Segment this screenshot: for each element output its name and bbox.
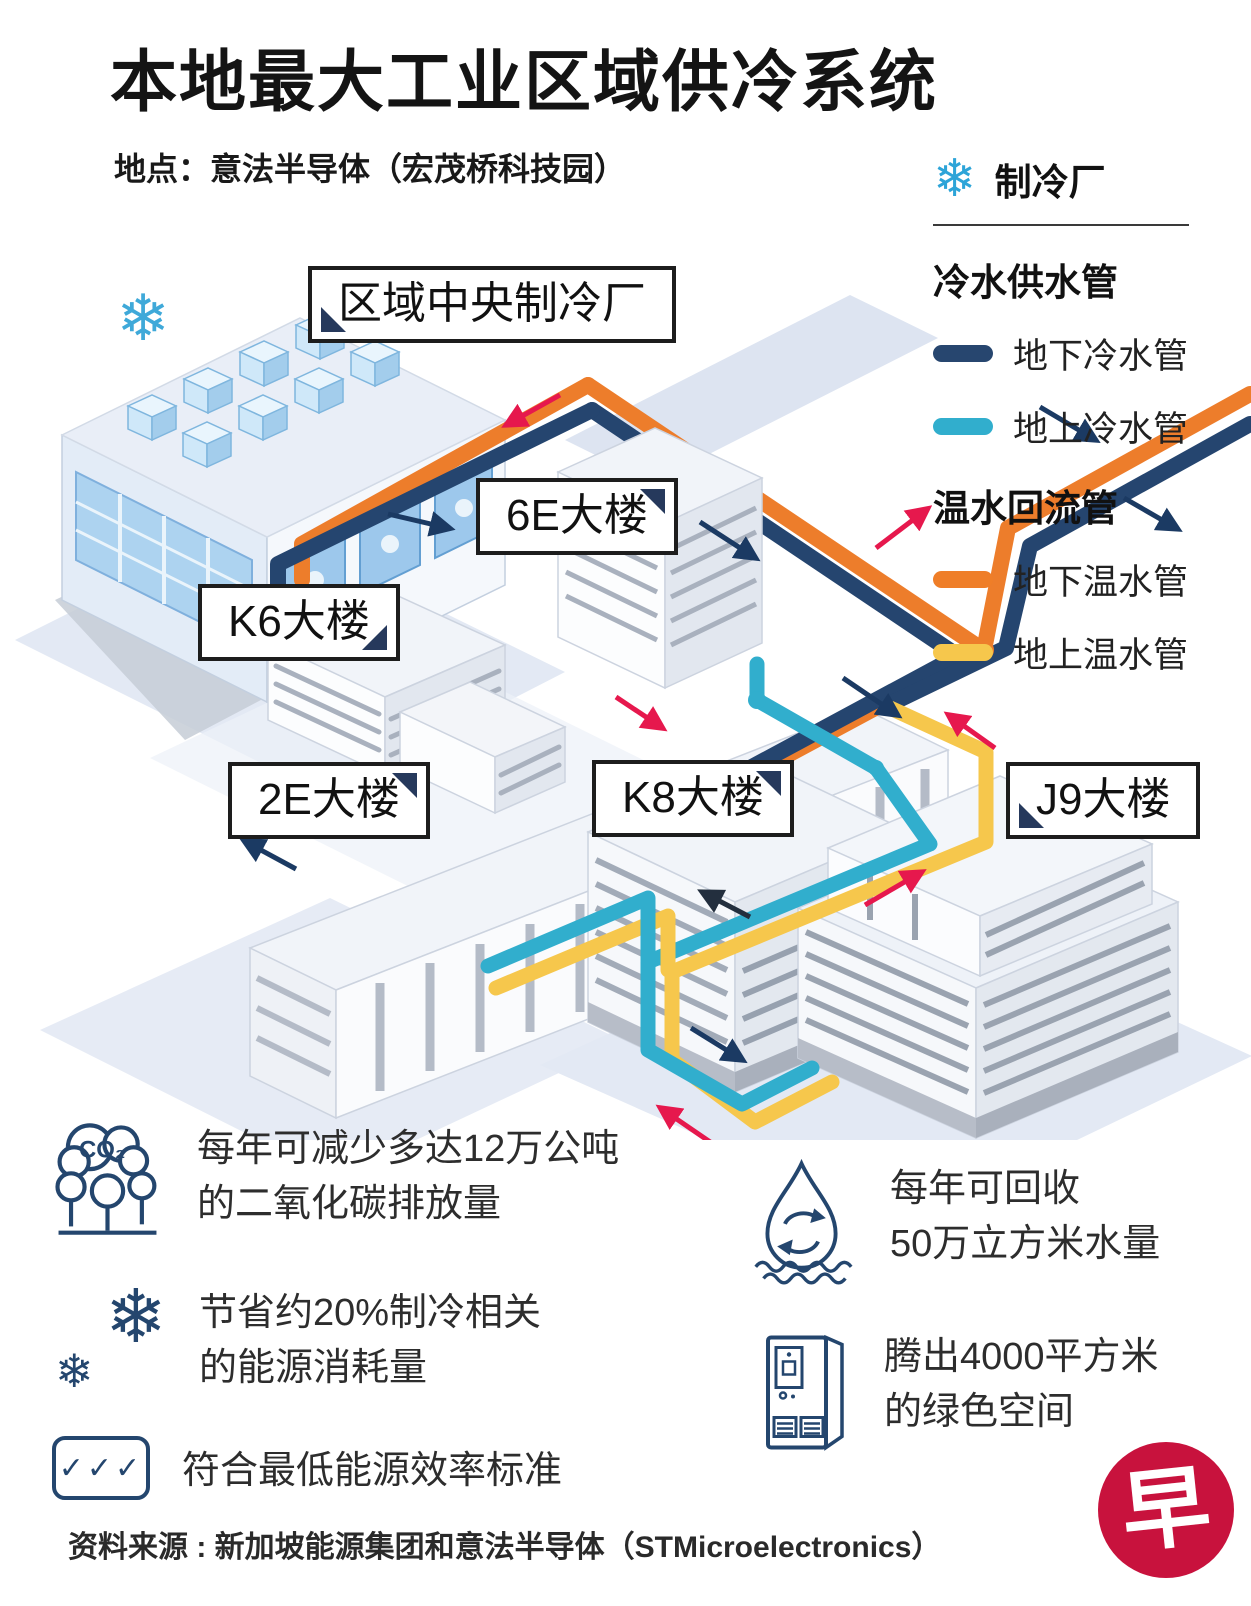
legend-plant-row: ❄ 制冷厂 bbox=[933, 150, 1233, 208]
svg-text:CO₂: CO₂ bbox=[79, 1137, 126, 1164]
label-pointer bbox=[392, 773, 417, 798]
equipment-cabinet-icon bbox=[752, 1324, 852, 1467]
stat-text: 每年可回收 50万立方米水量 bbox=[890, 1162, 1160, 1272]
stat-text: 符合最低能源效率标准 bbox=[182, 1444, 562, 1499]
pipe-swatch-underground-warm bbox=[933, 571, 993, 588]
legend: ❄ 制冷厂 冷水供水管 地下冷水管 地上冷水管 温水回流管 地下温水管 地上温水… bbox=[933, 150, 1233, 678]
label-text: J9大楼 bbox=[1036, 775, 1170, 824]
co2-trees-icon: CO₂ bbox=[50, 1116, 165, 1246]
label-text: 6E大楼 bbox=[506, 491, 648, 540]
zaobao-logo-char: 早 bbox=[1118, 1462, 1215, 1559]
zaobao-logo: 早 bbox=[1098, 1442, 1234, 1578]
stat-water-recycled: 每年可回收 50万立方米水量 bbox=[746, 1156, 1160, 1291]
snowflake-icon: ❄ bbox=[116, 282, 170, 356]
pipe-swatch-above-cold bbox=[933, 418, 993, 435]
label-pointer bbox=[756, 771, 781, 796]
stat-text: 节省约20%制冷相关 的能源消耗量 bbox=[199, 1286, 541, 1396]
legend-row-underground-cold: 地下冷水管 bbox=[933, 328, 1233, 379]
legend-row-above-warm: 地上温水管 bbox=[933, 627, 1233, 678]
label-text: K6大楼 bbox=[228, 597, 370, 646]
label-text: K8大楼 bbox=[622, 773, 764, 822]
stat-green-space: 腾出4000平方米 的绿色空间 bbox=[752, 1324, 1159, 1467]
stat-text: 腾出4000平方米 的绿色空间 bbox=[884, 1330, 1159, 1440]
label-pointer bbox=[362, 625, 387, 650]
label-central-cooling-plant: 区域中央制冷厂 bbox=[308, 266, 676, 343]
label-text: 2E大楼 bbox=[258, 775, 400, 824]
snowflake-icon: ❄ bbox=[933, 153, 977, 205]
building-6e bbox=[558, 428, 762, 688]
stat-co2-reduction: CO₂ 每年可减少多达12万公吨 的二氧化碳排放量 bbox=[50, 1116, 619, 1246]
stat-text: 每年可减少多达12万公吨 的二氧化碳排放量 bbox=[197, 1122, 619, 1232]
snowflakes-icon: ❄ ❄ bbox=[55, 1280, 167, 1396]
legend-row-above-cold: 地上冷水管 bbox=[933, 401, 1233, 452]
legend-row-underground-warm: 地下温水管 bbox=[933, 554, 1233, 605]
label-building-j9: J9大楼 bbox=[1006, 762, 1200, 839]
label-pointer bbox=[640, 489, 665, 514]
label-text: 区域中央制冷厂 bbox=[338, 279, 646, 328]
page-subtitle: 地点：意法半导体（宏茂桥科技园） bbox=[114, 144, 626, 190]
page-title: 本地最大工业区域供冷系统 bbox=[110, 28, 938, 125]
label-building-2e: 2E大楼 bbox=[228, 762, 430, 839]
legend-cold-heading: 冷水供水管 bbox=[933, 252, 1233, 306]
label-pointer bbox=[321, 307, 346, 332]
water-recycle-icon bbox=[746, 1156, 858, 1291]
pipe-swatch-underground-cold bbox=[933, 345, 993, 362]
pipe-swatch-above-warm bbox=[933, 644, 993, 661]
source-note: 资料来源 : 新加坡能源集团和意法半导体（STMicroelectronics） bbox=[68, 1522, 941, 1566]
stat-energy-saving: ❄ ❄ 节省约20%制冷相关 的能源消耗量 bbox=[55, 1280, 541, 1396]
legend-plant-label: 制冷厂 bbox=[995, 152, 1106, 206]
checklist-icon: ✓✓✓ bbox=[52, 1436, 150, 1500]
stat-efficiency-standard: ✓✓✓ 符合最低能源效率标准 bbox=[52, 1436, 562, 1500]
label-building-k8: K8大楼 bbox=[592, 760, 794, 837]
label-pointer bbox=[1019, 803, 1044, 828]
label-building-k6: K6大楼 bbox=[198, 584, 400, 661]
legend-divider bbox=[933, 224, 1189, 226]
legend-warm-heading: 温水回流管 bbox=[933, 478, 1233, 532]
label-building-6e: 6E大楼 bbox=[476, 478, 678, 555]
